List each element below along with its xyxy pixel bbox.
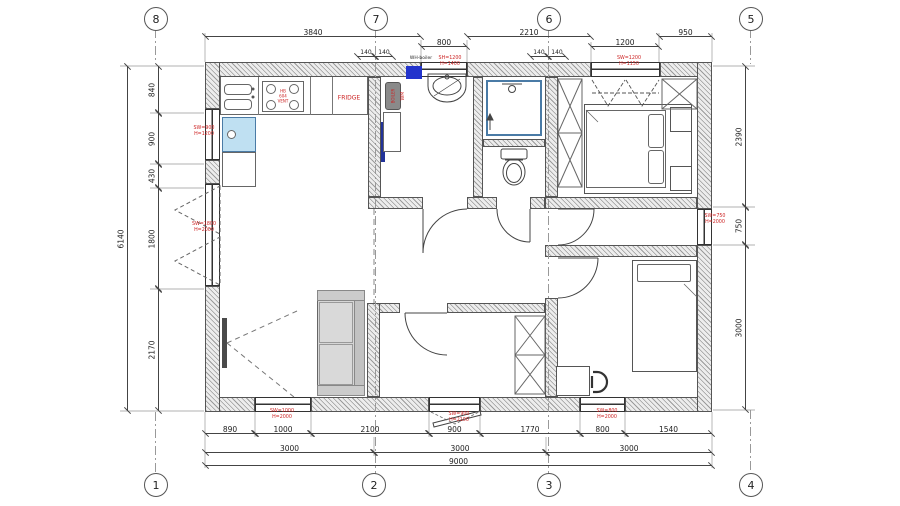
dimension-label: 2100	[360, 426, 379, 434]
grid-bubble-8: 8	[144, 7, 168, 31]
dimension-label: 840	[148, 82, 156, 96]
dimension-label: 890	[223, 426, 237, 434]
floor-plan-canvas: 3840221095080012001401401401408409004301…	[0, 0, 900, 506]
tv-sightlines	[227, 311, 297, 397]
bed1-fold	[586, 110, 598, 122]
dimension-label: 1000	[273, 426, 292, 434]
dimension: 140	[357, 56, 375, 57]
dimension: 9000	[205, 465, 712, 466]
dimension: 840	[158, 66, 159, 113]
grid-bubble-6: 6	[537, 7, 561, 31]
wardrobe-x	[515, 79, 697, 394]
dimension-label: 2390	[735, 127, 743, 146]
dimension-label: 750	[735, 219, 743, 233]
faucet-dot	[252, 96, 255, 99]
dimension: 140	[375, 56, 393, 57]
dimension: 3000	[205, 452, 374, 453]
annotation: WH-boiler	[410, 56, 432, 62]
bed2-fold	[684, 284, 697, 297]
dimension-label: 2210	[519, 29, 538, 37]
dimension: 2210	[467, 36, 591, 37]
annotation: FRIDGE	[338, 94, 360, 102]
dimension-label: 3840	[303, 29, 322, 37]
annotation: BOILER	[391, 89, 396, 104]
shower-head	[487, 84, 522, 130]
dimension: 3000	[745, 245, 746, 410]
desk-chair	[592, 372, 607, 392]
dimension: 3000	[546, 452, 712, 453]
dimension-label: 3000	[280, 445, 299, 453]
dimension-label: 1800	[148, 229, 156, 248]
dimension: 1200	[591, 46, 659, 47]
annotation: SW=800 H=2000	[597, 409, 618, 421]
annotation: SW=900 H=1200	[194, 126, 215, 138]
grid-bubble-4: 4	[739, 473, 763, 497]
dimension: 1540	[625, 433, 712, 434]
grid-bubble-5: 5	[739, 7, 763, 31]
dimension-label: 2170	[148, 340, 156, 359]
annotation: SW=750 H=2000	[705, 214, 726, 226]
dimension: 900	[429, 433, 480, 434]
dimension: 1800	[158, 188, 159, 289]
dimension: 6140	[127, 66, 128, 411]
grid-bubble-1: 1	[144, 473, 168, 497]
dimension-label: 430	[148, 169, 156, 183]
dimension: 140	[548, 56, 566, 57]
dimension: 900	[158, 113, 159, 164]
annotation: WM	[401, 92, 407, 101]
dimension: 2170	[158, 289, 159, 411]
dimension-label: 3000	[619, 445, 638, 453]
dimension: 2390	[745, 66, 746, 207]
dimension: 800	[580, 433, 625, 434]
dimension-label: 950	[678, 29, 692, 37]
dimension-label: 9000	[449, 458, 468, 466]
grid-bubble-7: 7	[364, 7, 388, 31]
annotation: HB 604 VENT	[278, 89, 289, 104]
dimension-label: 900	[148, 131, 156, 145]
dimension-label: 800	[437, 39, 451, 47]
annotation: SW=1800 H=2000	[192, 222, 216, 234]
dimension-label: 3000	[735, 318, 743, 337]
dimension-label: 1540	[659, 426, 678, 434]
dimension-label: 140	[551, 50, 562, 56]
witness-lines	[120, 33, 755, 468]
dimension-label: 140	[378, 50, 389, 56]
annotation: SW=1000 H=2000	[270, 409, 294, 421]
dimension: 1000	[255, 433, 311, 434]
dimension: 800	[421, 46, 467, 47]
dimension: 890	[205, 433, 255, 434]
dimension-label: 3000	[450, 445, 469, 453]
dimension: 750	[745, 207, 746, 245]
dimension: 1770	[480, 433, 580, 434]
window-casements-1200	[592, 80, 659, 106]
dimension-label: 140	[533, 50, 544, 56]
dimension-label: 6140	[117, 229, 125, 248]
dimension-label: 900	[447, 426, 461, 434]
dimension: 140	[530, 56, 548, 57]
dimension: 2100	[311, 433, 429, 434]
toilet	[501, 149, 527, 185]
annotation: SW=900 H=2100	[449, 412, 470, 424]
grid-bubble-2: 2	[362, 473, 386, 497]
dimension: 3000	[374, 452, 546, 453]
dimension: 3840	[205, 36, 421, 37]
grid-centerlines	[156, 29, 751, 477]
dimension-label: 800	[595, 426, 609, 434]
dimension: 950	[659, 36, 712, 37]
grid-bubble-3: 3	[537, 473, 561, 497]
dimension: 430	[158, 164, 159, 188]
french-door-casements	[175, 186, 220, 285]
dimension-label: 1770	[520, 426, 539, 434]
annotation: SW=1200 H=1150	[617, 56, 641, 68]
faucet-dot	[252, 88, 255, 91]
door-swings	[405, 209, 598, 355]
dimension-label: 140	[360, 50, 371, 56]
basin	[428, 74, 466, 102]
dimension-label: 1200	[615, 39, 634, 47]
annotation: SH=1200 H=1400	[439, 56, 462, 68]
